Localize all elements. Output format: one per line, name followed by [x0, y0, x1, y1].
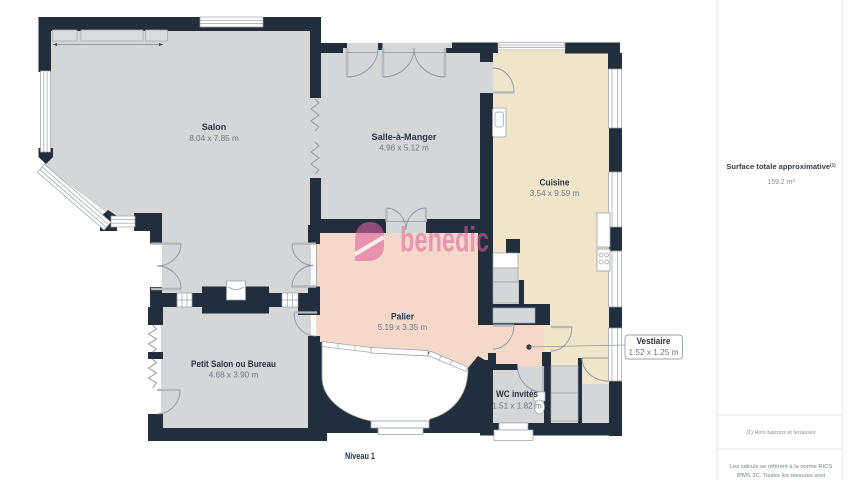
svg-text:Cuisine: Cuisine [540, 178, 570, 188]
svg-text:Surface totale approximative(1: Surface totale approximative(1) [726, 162, 836, 171]
svg-text:1.51 x 1.82 m: 1.51 x 1.82 m [492, 402, 542, 411]
svg-text:Salle-à-Manger: Salle-à-Manger [372, 132, 437, 142]
svg-text:Les calculs se réfèrent à la n: Les calculs se réfèrent à la norme RICS [730, 464, 833, 470]
svg-text:WC invités: WC invités [496, 389, 538, 399]
svg-text:3.54 x 9.59 m: 3.54 x 9.59 m [530, 189, 580, 198]
svg-text:5.19 x 3.35 m: 5.19 x 3.35 m [378, 323, 428, 332]
svg-text:1.52 x 1.25 m: 1.52 x 1.25 m [629, 348, 679, 357]
svg-text:8.04 x 7.85 m: 8.04 x 7.85 m [189, 134, 239, 143]
svg-text:Salon: Salon [202, 122, 227, 132]
svg-text:benedic: benedic [400, 221, 489, 260]
svg-text:159.2 m²: 159.2 m² [767, 179, 795, 186]
svg-text:Vestiaire: Vestiaire [637, 336, 671, 346]
svg-text:4.68 x 3.90 m: 4.68 x 3.90 m [209, 371, 259, 380]
svg-text:Petit Salon ou Bureau: Petit Salon ou Bureau [191, 359, 276, 369]
svg-text:IPMS 3C. Toutes les mesures so: IPMS 3C. Toutes les mesures sont [737, 473, 826, 479]
svg-text:Palier: Palier [391, 312, 414, 322]
svg-text:(1) Hors balcons et terrasses: (1) Hors balcons et terrasses [746, 430, 816, 436]
svg-text:4.96 x 5.12 m: 4.96 x 5.12 m [379, 144, 429, 153]
svg-text:Niveau 1: Niveau 1 [345, 451, 375, 461]
